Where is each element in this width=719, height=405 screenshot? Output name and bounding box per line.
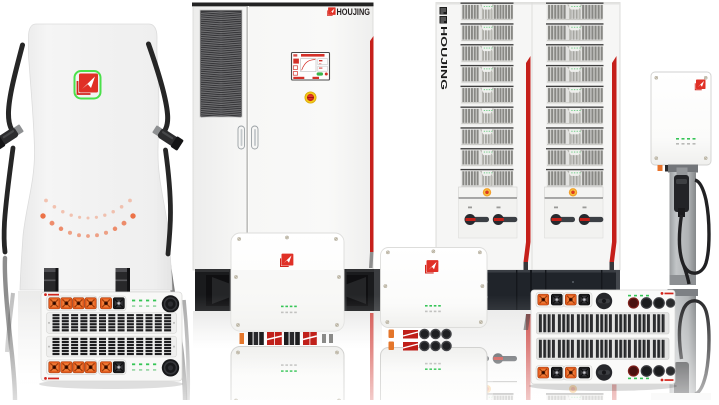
svg-text:HOUJING: HOUJING	[439, 26, 448, 90]
svg-text:HOUJING: HOUJING	[337, 7, 371, 17]
